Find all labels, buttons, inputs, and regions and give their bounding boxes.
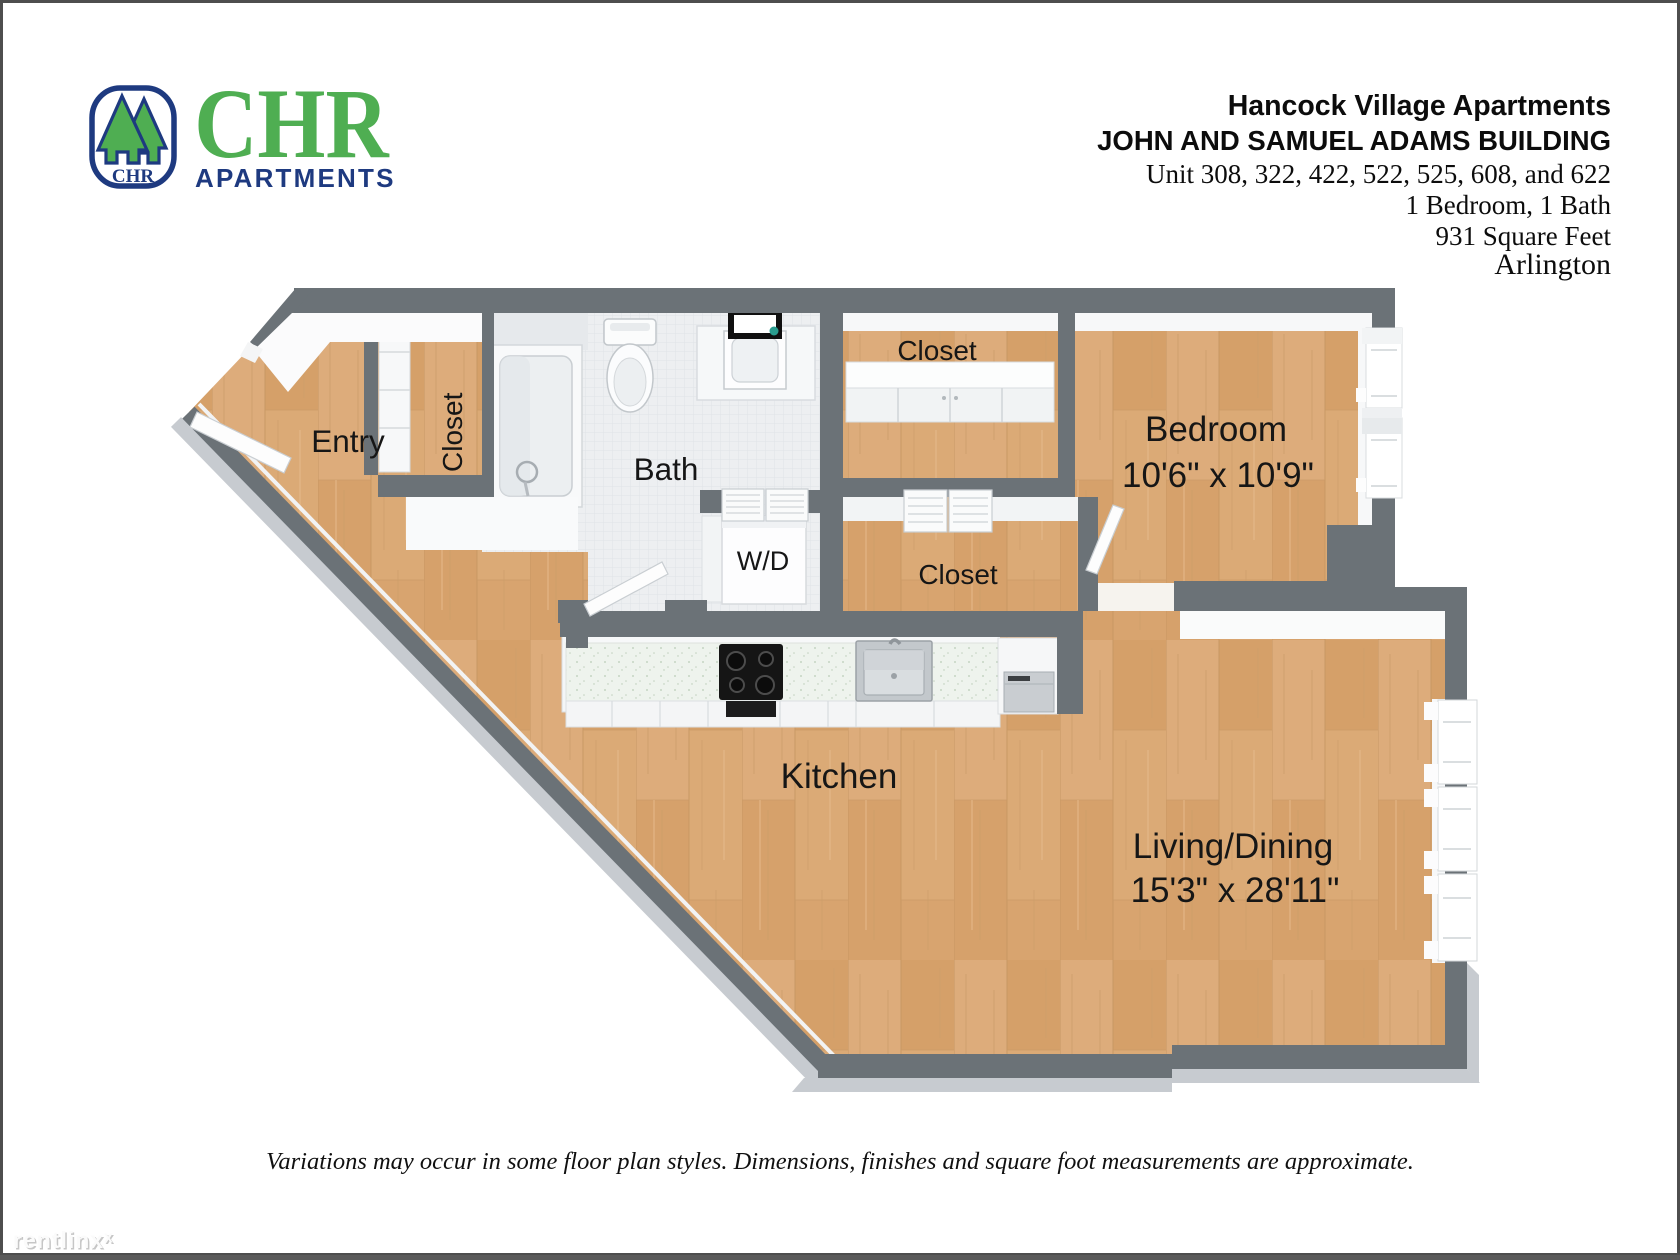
svg-text:Closet: Closet xyxy=(918,559,998,590)
svg-text:Closet: Closet xyxy=(897,335,977,366)
svg-text:Variations may occur in some f: Variations may occur in some floor plan … xyxy=(266,1148,1414,1175)
svg-text:15'3" x 28'11": 15'3" x 28'11" xyxy=(1131,871,1340,910)
svg-text:Hancock Village Apartments: Hancock Village Apartments xyxy=(1228,90,1611,122)
svg-text:Unit 308, 322, 422, 522, 525,: Unit 308, 322, 422, 522, 525, 608, and 6… xyxy=(1146,159,1611,189)
svg-text:Living/Dining: Living/Dining xyxy=(1133,827,1333,866)
svg-text:Closet: Closet xyxy=(437,392,468,472)
svg-text:Arlington: Arlington xyxy=(1494,248,1611,281)
svg-text:10'6" x 10'9": 10'6" x 10'9" xyxy=(1122,456,1314,495)
svg-text:CHR: CHR xyxy=(112,166,155,187)
svg-text:rentlinxˣ: rentlinxˣ xyxy=(13,1227,114,1253)
svg-text:Bedroom: Bedroom xyxy=(1145,410,1287,449)
svg-text:931 Square Feet: 931 Square Feet xyxy=(1436,221,1612,251)
svg-text:JOHN AND SAMUEL ADAMS BUILDING: JOHN AND SAMUEL ADAMS BUILDING xyxy=(1097,125,1611,156)
svg-text:Bath: Bath xyxy=(634,451,699,487)
svg-text:W/D: W/D xyxy=(737,546,789,576)
svg-text:Kitchen: Kitchen xyxy=(781,757,898,796)
svg-text:Entry: Entry xyxy=(311,423,385,459)
svg-text:1 Bedroom, 1 Bath: 1 Bedroom, 1 Bath xyxy=(1406,190,1612,220)
svg-text:APARTMENTS: APARTMENTS xyxy=(195,163,396,193)
